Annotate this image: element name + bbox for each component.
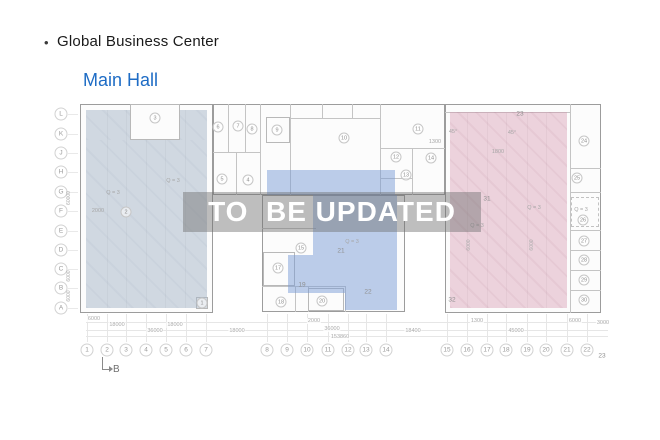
grid-tick	[267, 314, 268, 342]
room-number: 14	[426, 153, 437, 164]
wall	[570, 230, 601, 231]
grid-col-label: 5	[160, 344, 173, 357]
room-number: 27	[579, 236, 590, 247]
grid-col-label: 10	[301, 344, 314, 357]
grid-col-label: 19	[521, 344, 534, 357]
wall	[570, 168, 601, 169]
dimension-label: 45000	[507, 328, 524, 334]
room-number: 32	[448, 297, 455, 304]
grid-tick	[68, 231, 78, 232]
wall	[236, 152, 237, 195]
annotation: Q = 3	[527, 205, 541, 211]
grid-tick	[447, 314, 448, 342]
wall	[570, 290, 601, 291]
dimension-label: 153860	[330, 334, 350, 340]
grid-row-label: D	[55, 244, 68, 257]
section-cut-line	[102, 369, 109, 370]
room-number: 1	[197, 298, 208, 309]
dimension-label: 2000	[307, 318, 321, 324]
grid-tick	[467, 314, 468, 342]
grid-tick	[166, 314, 167, 342]
grid-tick	[126, 314, 127, 342]
grid-tick	[68, 250, 78, 251]
annotation: Q = 3	[574, 207, 588, 213]
room-number: 12	[391, 152, 402, 163]
page-title: Global Business Center	[57, 33, 219, 50]
dimension-line	[86, 330, 608, 331]
grid-col-label: 2	[101, 344, 114, 357]
grid-tick	[68, 211, 78, 212]
grid-col-label: 21	[561, 344, 574, 357]
dimension-label: 6000	[529, 239, 535, 250]
wall	[570, 270, 601, 271]
wall	[290, 118, 380, 119]
grid-tick	[186, 314, 187, 342]
room-number: 2	[121, 207, 132, 218]
dimension-label: 6000	[568, 318, 582, 324]
room-number: 10	[339, 133, 350, 144]
grid-row-label: H	[55, 166, 68, 179]
room-number: 28	[579, 255, 590, 266]
wall	[412, 148, 413, 195]
grid-tick	[527, 314, 528, 342]
grid-tick	[68, 114, 78, 115]
grid-col-label: 7	[200, 344, 213, 357]
room-number: 20	[317, 296, 328, 307]
zone-left-overlay	[86, 110, 130, 140]
grid-col-label: 12	[342, 344, 355, 357]
room-number: 24	[579, 136, 590, 147]
grid-row-label: K	[55, 128, 68, 141]
grid-tick	[107, 314, 108, 342]
hall-link[interactable]: Main Hall	[83, 70, 158, 91]
dimension-label: 6000	[466, 239, 472, 250]
grid-col-label: 18	[500, 344, 513, 357]
watermark-text: TO BE UPDATED	[208, 196, 456, 228]
room-number: 6	[213, 122, 224, 133]
wall	[352, 104, 353, 118]
grid-col-label: 17	[481, 344, 494, 357]
grid-col-label: 8	[261, 344, 274, 357]
grid-tick	[68, 134, 78, 135]
dimension-label: 3000	[596, 320, 610, 326]
watermark-band: TO BE UPDATED	[183, 192, 481, 232]
room-number: 22	[364, 289, 371, 296]
dimension-label: 6000	[87, 316, 101, 322]
grid-col-label: 3	[120, 344, 133, 357]
room-number: 3	[150, 113, 161, 124]
annotation: 1800	[492, 149, 504, 155]
grid-row-label: E	[55, 225, 68, 238]
grid-tick	[287, 314, 288, 342]
dimension-label: 18400	[404, 328, 421, 334]
annotation: Q = 3	[166, 178, 180, 184]
grid-col-label: 20	[540, 344, 553, 357]
section-marker-label: B	[113, 364, 120, 375]
room-number: 8	[247, 124, 258, 135]
dimension-label: 18000	[166, 322, 183, 328]
dimension-label: 60000	[66, 191, 72, 205]
annotation: 1300	[429, 139, 441, 145]
annotation: Q = 3	[345, 239, 359, 245]
annotation: 2000	[92, 208, 104, 214]
grid-row-label: F	[55, 205, 68, 218]
room-number: 31	[483, 196, 490, 203]
room-number: 9	[272, 125, 283, 136]
grid-col-label: 16	[461, 344, 474, 357]
room-number: 30	[579, 295, 590, 306]
dimension-label: 18000	[108, 322, 125, 328]
annotation: 45°	[508, 130, 516, 136]
dimension-label: 36000	[146, 328, 163, 334]
grid-col-label: 4	[140, 344, 153, 357]
wall	[228, 104, 229, 152]
grid-row-label: L	[55, 108, 68, 121]
room-number: 19	[298, 282, 305, 289]
room-number: 13	[401, 170, 412, 181]
room-number: 15	[296, 243, 307, 254]
grid-col-label: 14	[380, 344, 393, 357]
grid-tick	[546, 314, 547, 342]
grid-col-label: 6	[180, 344, 193, 357]
annotation: 45°	[449, 129, 457, 135]
grid-col-label: 15	[441, 344, 454, 357]
dimension-label: 36000	[323, 326, 340, 332]
room-number: 5	[217, 174, 228, 185]
room-number: 25	[572, 173, 583, 184]
floor-plan-page: • Global Business Center Main Hall TO BE…	[0, 0, 660, 440]
room-number: 7	[233, 121, 244, 132]
grid-row-label: J	[55, 147, 68, 160]
grid-tick	[366, 314, 367, 342]
room-number: 23	[516, 111, 523, 118]
grid-tick	[68, 288, 78, 289]
bullet-icon: •	[44, 35, 49, 50]
grid-tick	[68, 172, 78, 173]
grid-tick	[68, 153, 78, 154]
room-number: 17	[273, 263, 284, 274]
grid-tick	[587, 314, 588, 342]
annotation: Q = 3	[106, 190, 120, 196]
grid-col-label: 23	[598, 353, 605, 360]
wall	[570, 250, 601, 251]
grid-tick	[68, 308, 78, 309]
room-number: 18	[276, 297, 287, 308]
zone-middle-overlay	[345, 293, 397, 310]
room-number: 4	[243, 175, 254, 186]
grid-tick	[386, 314, 387, 342]
dimension-label: 6000	[66, 290, 72, 301]
grid-col-label: 11	[322, 344, 335, 357]
room-number: 26	[578, 215, 589, 226]
room-number: 11	[413, 124, 424, 135]
dimension-line	[86, 322, 608, 323]
grid-row-label: A	[55, 302, 68, 315]
room-number: 29	[579, 275, 590, 286]
wall	[260, 104, 261, 195]
room-number: 21	[337, 248, 344, 255]
grid-col-label: 1	[81, 344, 94, 357]
wall	[570, 192, 601, 193]
dimension-label: 1300	[470, 318, 484, 324]
grid-col-label: 9	[281, 344, 294, 357]
dimension-label: 6000	[66, 270, 72, 281]
grid-tick	[206, 314, 207, 342]
zone-left-overlay	[180, 110, 207, 140]
grid-col-label: 22	[581, 344, 594, 357]
grid-tick	[487, 314, 488, 342]
grid-col-label: 13	[360, 344, 373, 357]
dimension-label: 18000	[228, 328, 245, 334]
wall	[322, 104, 323, 118]
